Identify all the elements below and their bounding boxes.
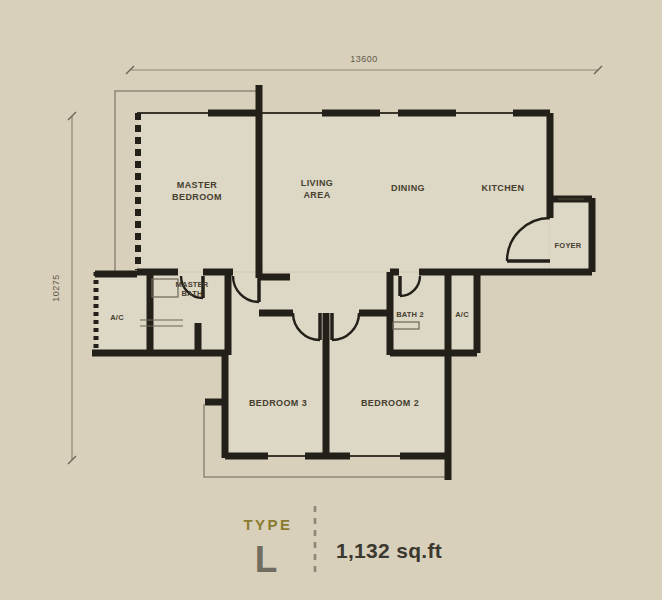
floor-plan-drawing: 13600 10275 xyxy=(0,0,662,600)
room-label-dining: DINING xyxy=(391,183,425,193)
dimension-top: 13600 xyxy=(126,54,602,74)
room-label-living-area: LIVING xyxy=(301,178,333,188)
svg-text:BATH: BATH xyxy=(181,289,202,298)
floor-plan-page: 13600 10275 xyxy=(0,0,662,600)
room-label-bedroom2: BEDROOM 2 xyxy=(361,398,419,408)
footer: TYPE L 1,132 sq.ft xyxy=(243,506,442,580)
type-label: TYPE xyxy=(243,516,292,533)
room-label-kitchen: KITCHEN xyxy=(482,183,525,193)
room-label-master-bedroom: MASTER xyxy=(177,180,217,190)
room-label-ac-left: A/C xyxy=(110,313,124,322)
room-label-bath2: BATH 2 xyxy=(396,310,424,319)
room-fills xyxy=(96,114,591,457)
room-label-foyer: FOYER xyxy=(555,241,582,250)
room-label-ac-right: A/C xyxy=(455,310,469,319)
area-value: 1,132 sq.ft xyxy=(336,539,442,562)
type-value: L xyxy=(255,539,278,580)
dimension-height-label: 10275 xyxy=(51,274,61,302)
dimension-width-label: 13600 xyxy=(350,54,378,64)
dimension-left: 10275 xyxy=(51,112,76,464)
svg-text:BEDROOM: BEDROOM xyxy=(172,192,222,202)
svg-text:AREA: AREA xyxy=(303,190,330,200)
room-label-bedroom3: BEDROOM 3 xyxy=(249,398,307,408)
room-label-master-bath: MASTER xyxy=(176,280,209,289)
